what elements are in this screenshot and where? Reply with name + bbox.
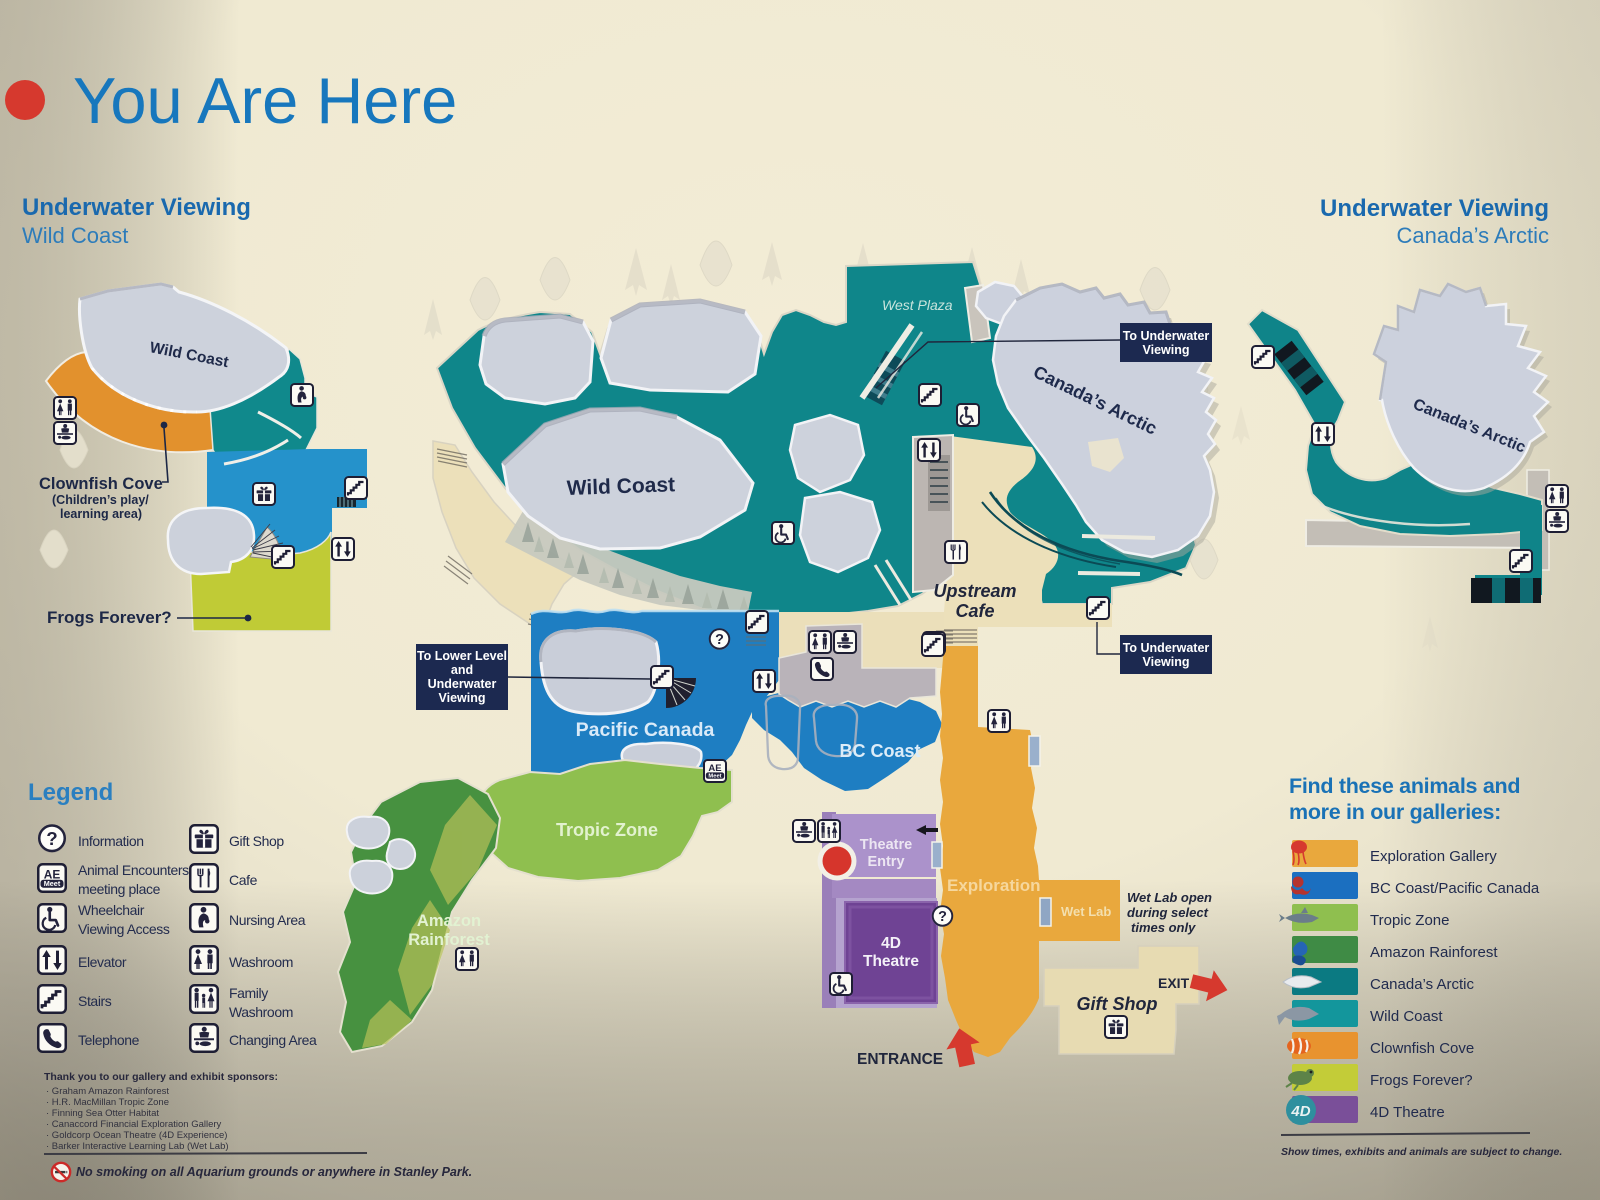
svg-text:BC Coast/Pacific Canada: BC Coast/Pacific Canada bbox=[1370, 880, 1540, 897]
svg-text:Underwater Viewing: Underwater Viewing bbox=[1320, 195, 1549, 222]
svg-text:Clownfish Cove: Clownfish Cove bbox=[1370, 1040, 1474, 1057]
svg-text:Canada’s Arctic: Canada’s Arctic bbox=[1370, 976, 1474, 993]
svg-text:Stairs: Stairs bbox=[78, 993, 112, 1009]
svg-text:· Barker Interactive Learning: · Barker Interactive Learning Lab (Wet L… bbox=[46, 1141, 229, 1152]
svg-text:Amazon: Amazon bbox=[417, 912, 481, 930]
svg-text:Theatre: Theatre bbox=[863, 953, 919, 970]
svg-text:West Plaza: West Plaza bbox=[882, 297, 953, 313]
svg-text:Tropic Zone: Tropic Zone bbox=[556, 820, 658, 840]
svg-text:Find these animals and: Find these animals and bbox=[1289, 774, 1520, 798]
svg-text:· H.R. MacMillan Tropic Zone: · H.R. MacMillan Tropic Zone bbox=[46, 1097, 169, 1108]
svg-text:To Underwater: To Underwater bbox=[1123, 641, 1210, 655]
svg-text:Wild Coast: Wild Coast bbox=[566, 473, 675, 500]
svg-text:· Goldcorp Ocean Theatre (4D E: · Goldcorp Ocean Theatre (4D Experience) bbox=[46, 1130, 227, 1141]
svg-text:Viewing: Viewing bbox=[438, 691, 485, 705]
svg-text:You Are Here: You Are Here bbox=[73, 64, 457, 137]
svg-text:and: and bbox=[451, 663, 473, 677]
svg-text:Elevator: Elevator bbox=[78, 954, 127, 970]
svg-text:Viewing: Viewing bbox=[1142, 343, 1189, 357]
svg-text:Washroom: Washroom bbox=[229, 954, 293, 970]
svg-text:Wet Lab open: Wet Lab open bbox=[1127, 890, 1212, 905]
svg-text:Clownfish Cove: Clownfish Cove bbox=[39, 475, 163, 493]
svg-text:Show times, exhibits and anima: Show times, exhibits and animals are sub… bbox=[1281, 1146, 1562, 1158]
svg-text:4D Theatre: 4D Theatre bbox=[1370, 1104, 1445, 1121]
svg-text:Tropic Zone: Tropic Zone bbox=[1370, 912, 1449, 929]
svg-text:Rainforest: Rainforest bbox=[408, 931, 490, 949]
svg-text:more in our galleries:: more in our galleries: bbox=[1289, 800, 1501, 824]
svg-text:Viewing Access: Viewing Access bbox=[78, 921, 170, 937]
svg-text:Gift Shop: Gift Shop bbox=[229, 833, 284, 849]
svg-text:learning area): learning area) bbox=[60, 507, 142, 521]
svg-text:· Canaccord Financial Explorat: · Canaccord Financial Exploration Galler… bbox=[46, 1119, 222, 1130]
svg-text:Underwater Viewing: Underwater Viewing bbox=[22, 194, 251, 221]
svg-text:· Finning Sea Otter Habitat: · Finning Sea Otter Habitat bbox=[46, 1108, 159, 1119]
svg-text:4D: 4D bbox=[1290, 1103, 1310, 1120]
svg-text:Wild Coast: Wild Coast bbox=[1370, 1008, 1443, 1025]
svg-text:Exploration Gallery: Exploration Gallery bbox=[1370, 848, 1497, 865]
svg-text:EXIT: EXIT bbox=[1158, 975, 1190, 991]
svg-text:To Lower Level: To Lower Level bbox=[417, 649, 507, 663]
svg-text:meeting place: meeting place bbox=[78, 881, 161, 897]
svg-text:Cafe: Cafe bbox=[955, 601, 994, 621]
svg-text:4D: 4D bbox=[881, 935, 901, 952]
svg-text:Changing Area: Changing Area bbox=[229, 1032, 317, 1048]
svg-text:Wheelchair: Wheelchair bbox=[78, 902, 145, 918]
svg-text:Animal Encounters: Animal Encounters bbox=[78, 862, 189, 878]
svg-text:No smoking on all Aquarium gro: No smoking on all Aquarium grounds or an… bbox=[76, 1165, 472, 1179]
svg-text:times only: times only bbox=[1131, 920, 1196, 935]
svg-text:Pacific Canada: Pacific Canada bbox=[576, 719, 715, 741]
svg-text:Cafe: Cafe bbox=[229, 872, 258, 888]
svg-text:Theatre: Theatre bbox=[860, 837, 912, 853]
svg-text:Entry: Entry bbox=[867, 854, 904, 870]
svg-text:· Graham Amazon Rainforest: · Graham Amazon Rainforest bbox=[46, 1086, 169, 1097]
svg-text:Viewing: Viewing bbox=[1142, 655, 1189, 669]
svg-text:Thank you to our gallery and e: Thank you to our gallery and exhibit spo… bbox=[44, 1071, 278, 1083]
svg-text:during select: during select bbox=[1127, 905, 1209, 920]
svg-text:Telephone: Telephone bbox=[78, 1032, 140, 1048]
svg-text:BC Coast: BC Coast bbox=[839, 741, 920, 761]
svg-text:Exploration: Exploration bbox=[947, 876, 1041, 895]
svg-text:Canada’s Arctic: Canada’s Arctic bbox=[1397, 223, 1549, 248]
svg-text:Legend: Legend bbox=[28, 779, 113, 806]
svg-text:Wet Lab: Wet Lab bbox=[1061, 904, 1111, 919]
svg-text:Upstream: Upstream bbox=[933, 581, 1016, 601]
svg-text:Information: Information bbox=[78, 833, 144, 849]
svg-text:Amazon Rainforest: Amazon Rainforest bbox=[1370, 944, 1498, 961]
svg-text:Gift Shop: Gift Shop bbox=[1077, 994, 1158, 1014]
svg-text:Underwater: Underwater bbox=[428, 677, 497, 691]
svg-text:Frogs Forever?: Frogs Forever? bbox=[1370, 1072, 1473, 1089]
svg-text:Family: Family bbox=[229, 985, 268, 1001]
svg-text:Frogs Forever?: Frogs Forever? bbox=[47, 608, 172, 627]
svg-text:Wild Coast: Wild Coast bbox=[22, 223, 128, 248]
svg-text:Washroom: Washroom bbox=[229, 1004, 293, 1020]
svg-text:To Underwater: To Underwater bbox=[1123, 329, 1210, 343]
svg-text:(Children’s play/: (Children’s play/ bbox=[52, 493, 149, 507]
svg-text:Nursing Area: Nursing Area bbox=[229, 912, 306, 928]
svg-text:ENTRANCE: ENTRANCE bbox=[857, 1051, 943, 1068]
